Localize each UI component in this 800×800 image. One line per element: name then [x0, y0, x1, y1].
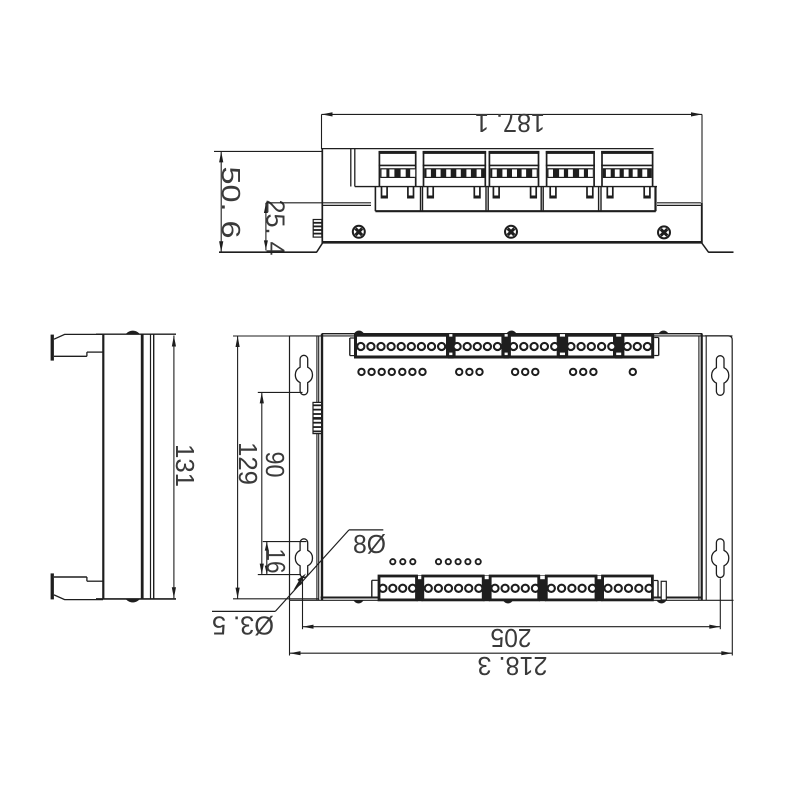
svg-text:90: 90	[260, 452, 290, 478]
svg-text:131: 131	[170, 444, 200, 487]
svg-text:16: 16	[261, 549, 291, 574]
svg-text:187. 1: 187. 1	[475, 108, 545, 138]
svg-text:25. 4: 25. 4	[261, 200, 291, 256]
svg-text:129: 129	[233, 442, 263, 485]
svg-text:8Ø: 8Ø	[353, 529, 386, 559]
svg-text:50. 6: 50. 6	[216, 167, 246, 239]
svg-text:205: 205	[491, 623, 532, 653]
svg-text:218. 3: 218. 3	[478, 651, 548, 681]
svg-text:Ø3. 5: Ø3. 5	[212, 611, 274, 641]
